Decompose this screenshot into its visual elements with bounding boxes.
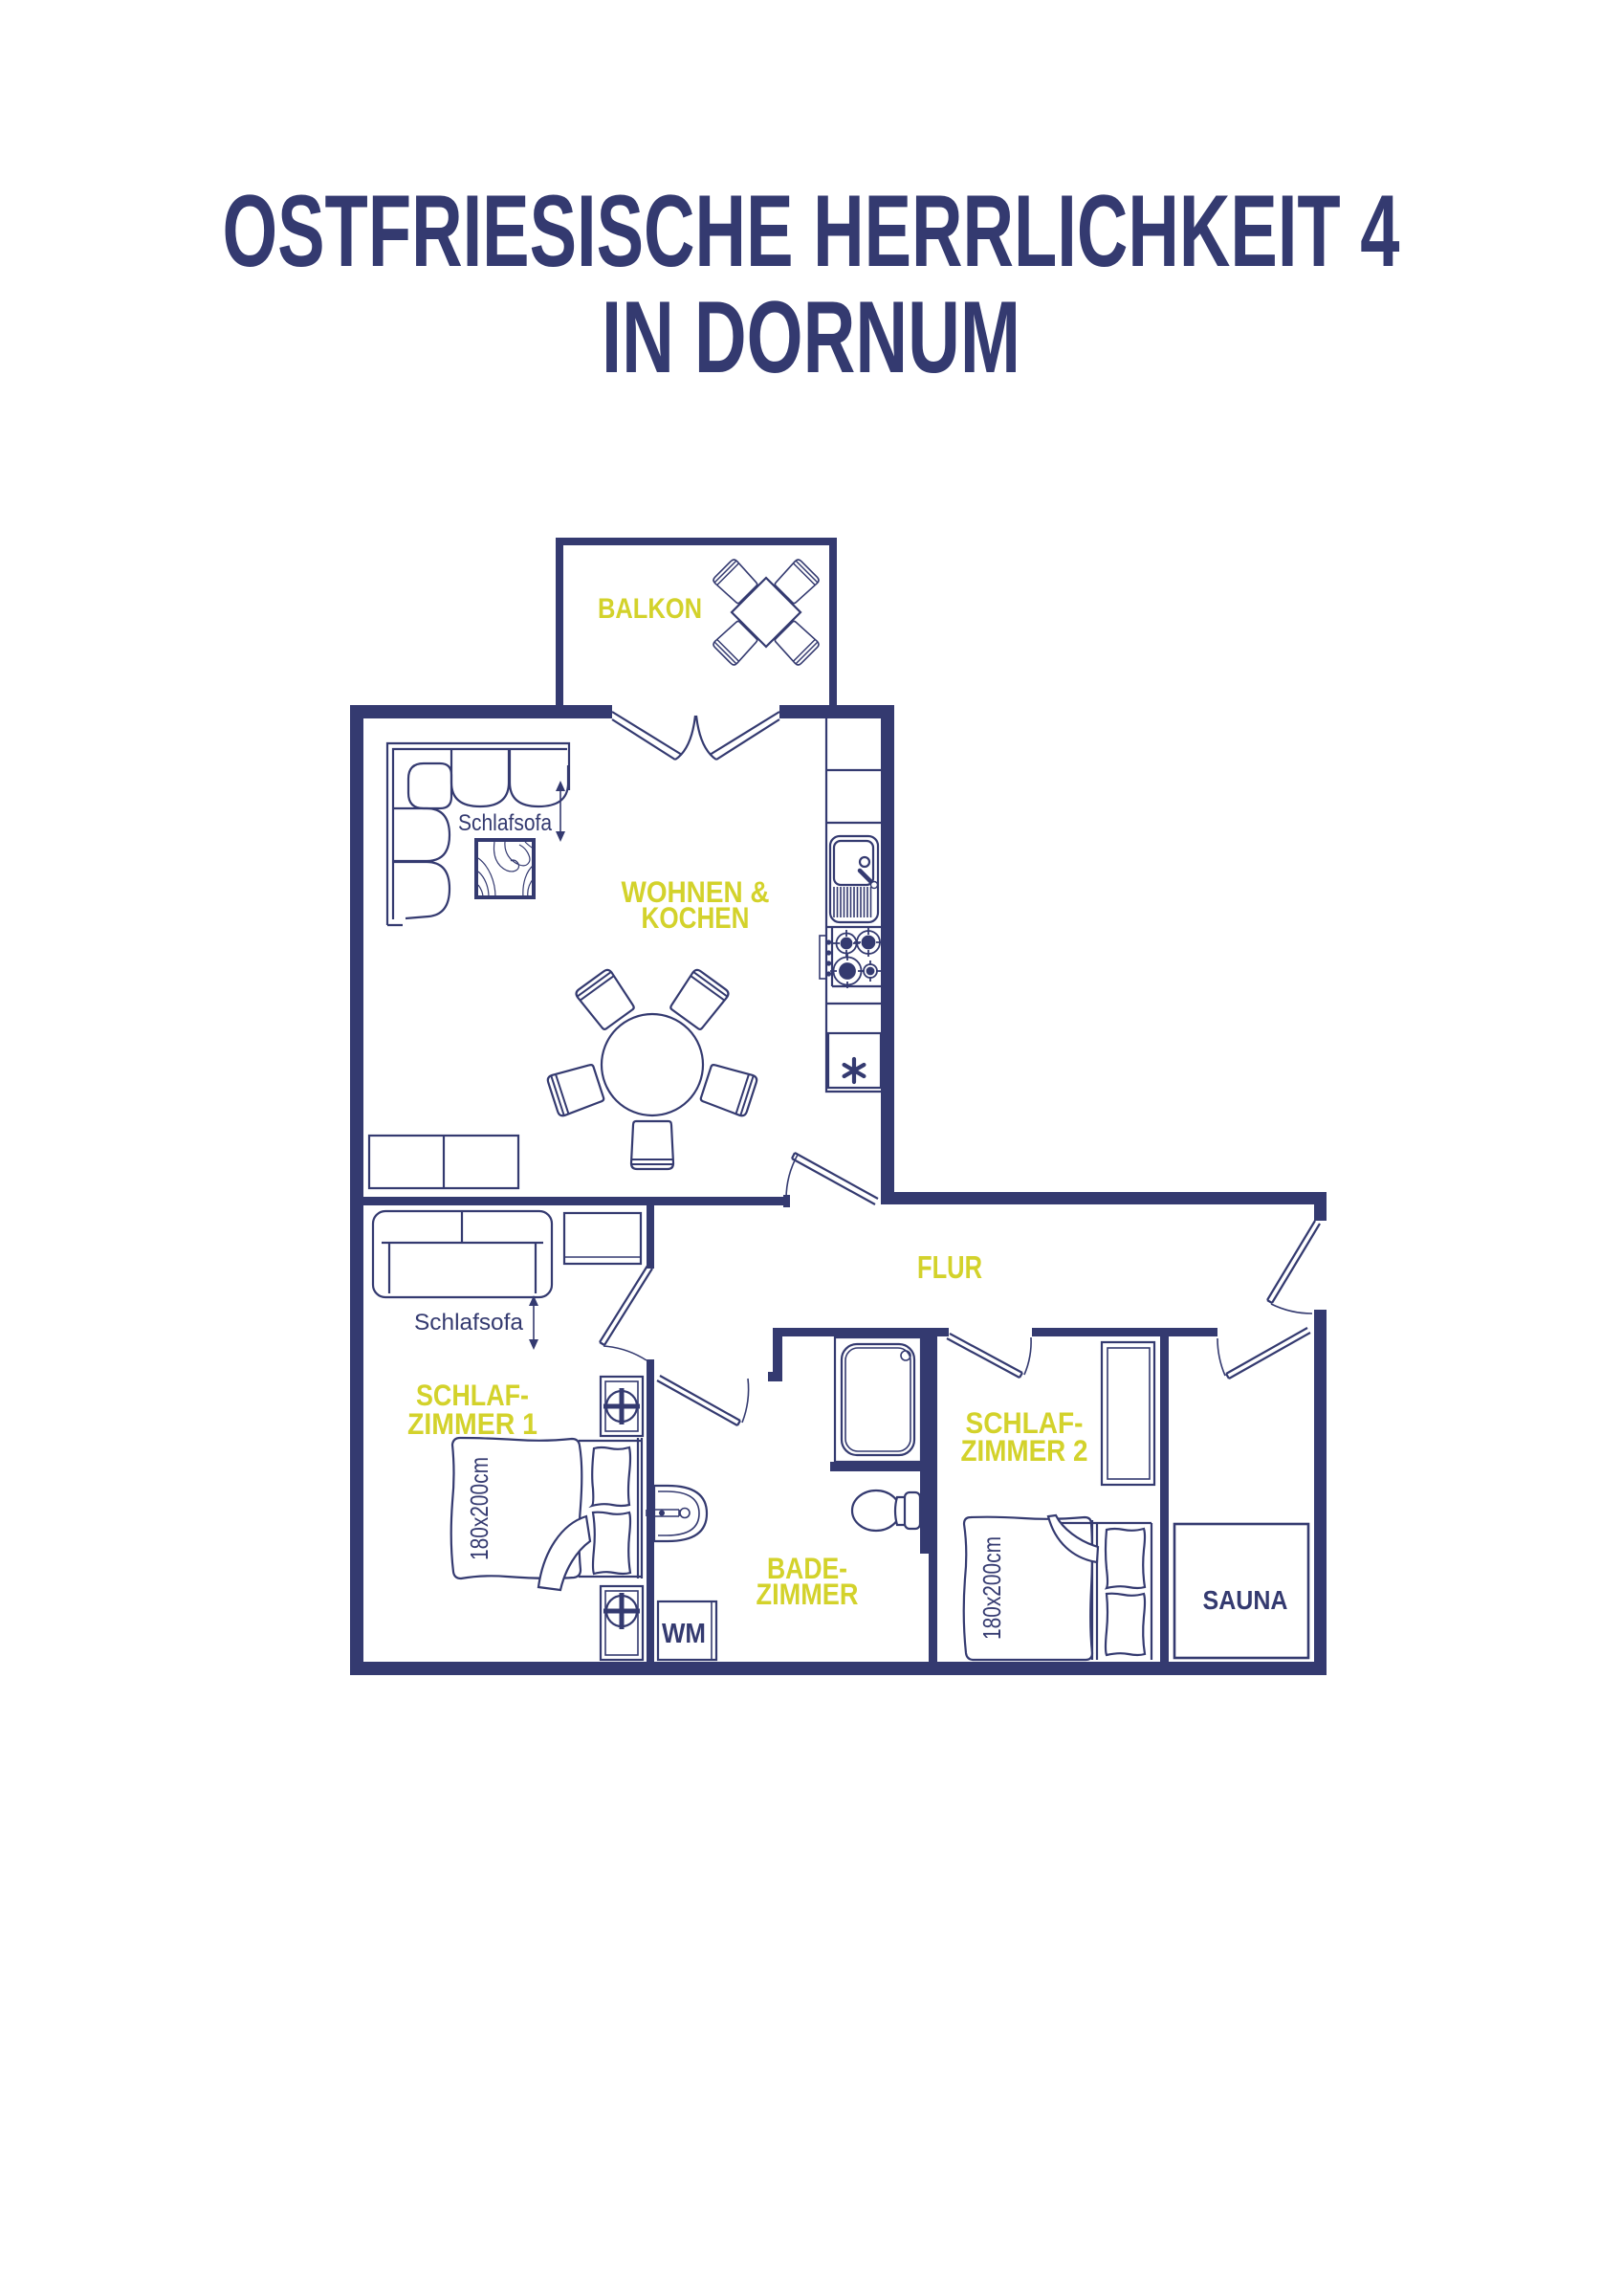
svg-text:ZIMMER 1: ZIMMER 1 (407, 1406, 537, 1441)
svg-text:Schlafsofa: Schlafsofa (458, 810, 553, 836)
svg-text:IN DORNUM: IN DORNUM (602, 279, 1020, 394)
svg-text:BALKON: BALKON (598, 593, 702, 625)
svg-text:180x200cm: 180x200cm (465, 1457, 493, 1560)
svg-text:ZIMMER 2: ZIMMER 2 (961, 1433, 1088, 1468)
svg-text:ZIMMER: ZIMMER (757, 1577, 859, 1611)
svg-text:Schlafsofa: Schlafsofa (414, 1310, 524, 1336)
svg-text:180x200cm: 180x200cm (977, 1536, 1006, 1640)
svg-text:KOCHEN: KOCHEN (642, 900, 750, 935)
svg-text:OSTFRIESISCHE HERRLICHKEIT 4: OSTFRIESISCHE HERRLICHKEIT 4 (223, 173, 1400, 288)
svg-text:FLUR: FLUR (917, 1249, 982, 1285)
svg-text:SAUNA: SAUNA (1203, 1585, 1288, 1615)
svg-text:WM: WM (662, 1619, 706, 1649)
